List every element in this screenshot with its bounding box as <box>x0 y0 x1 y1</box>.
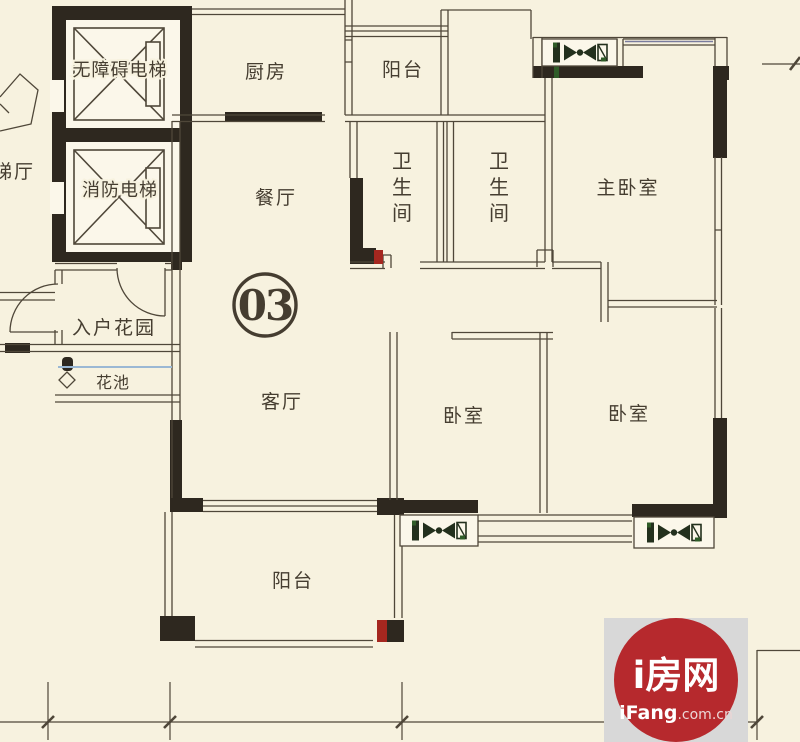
label-living: 客厅 <box>261 391 303 413</box>
unit-number-badge: 03 <box>234 274 296 336</box>
label-flower-bed: 花池 <box>96 373 130 392</box>
master-east-wall <box>713 80 727 158</box>
elevator1-door-gap <box>50 80 64 112</box>
label-elevator-fire: 消防电梯 <box>82 180 158 201</box>
bathroom1-west-wall <box>350 178 363 252</box>
balcony-post-right <box>387 620 404 642</box>
label-bathroom-2: 卫生间 <box>489 149 509 225</box>
bedroom2-south-wall <box>632 504 714 517</box>
master-north-wall <box>533 66 643 78</box>
garden-knob <box>62 357 73 371</box>
label-kitchen: 厨房 <box>245 61 287 83</box>
label-bedroom-1: 卧室 <box>443 405 485 427</box>
label-bathroom-1: 卫生间 <box>392 149 412 225</box>
label-balcony-bottom: 阳台 <box>272 570 314 592</box>
bedroom1-south-wall <box>395 500 478 513</box>
elevator2-door-gap <box>50 182 64 214</box>
label-entry-garden: 入户花园 <box>72 317 156 339</box>
master-ne-corner <box>713 66 729 80</box>
floor-plan-page: 03 无障碍电梯 消防电梯 梯厅 厨房 阳台 餐厅 卫生间 卫生间 主卧室 入户… <box>0 0 800 742</box>
label-balcony-top: 阳台 <box>382 59 424 81</box>
logo-name-cn: i房网 <box>633 654 720 697</box>
living-south-wall-left <box>170 498 203 512</box>
floor-plan-canvas: 03 无障碍电梯 消防电梯 梯厅 厨房 阳台 餐厅 卫生间 卫生间 主卧室 入户… <box>0 0 800 742</box>
ifang-watermark-logo: i房网 iFang.com.cn <box>604 618 748 742</box>
label-elevator-accessible: 无障碍电梯 <box>73 60 168 81</box>
red-accent-balcony-post <box>377 620 387 642</box>
kitchen-south-wall <box>225 112 322 122</box>
logo-domain-rest: .com.cn <box>677 707 732 723</box>
red-accent-bathroom1 <box>374 250 383 264</box>
bedroom2-east-wall <box>713 418 727 518</box>
label-bedroom-2: 卧室 <box>608 403 650 425</box>
balcony-post-left <box>160 616 195 641</box>
unit-number: 03 <box>238 281 292 330</box>
label-master-bedroom: 主卧室 <box>596 177 659 199</box>
label-elevator-lobby: 梯厅 <box>0 161 35 183</box>
logo-domain-bold: iFang <box>619 702 677 724</box>
label-dining: 餐厅 <box>255 187 297 209</box>
